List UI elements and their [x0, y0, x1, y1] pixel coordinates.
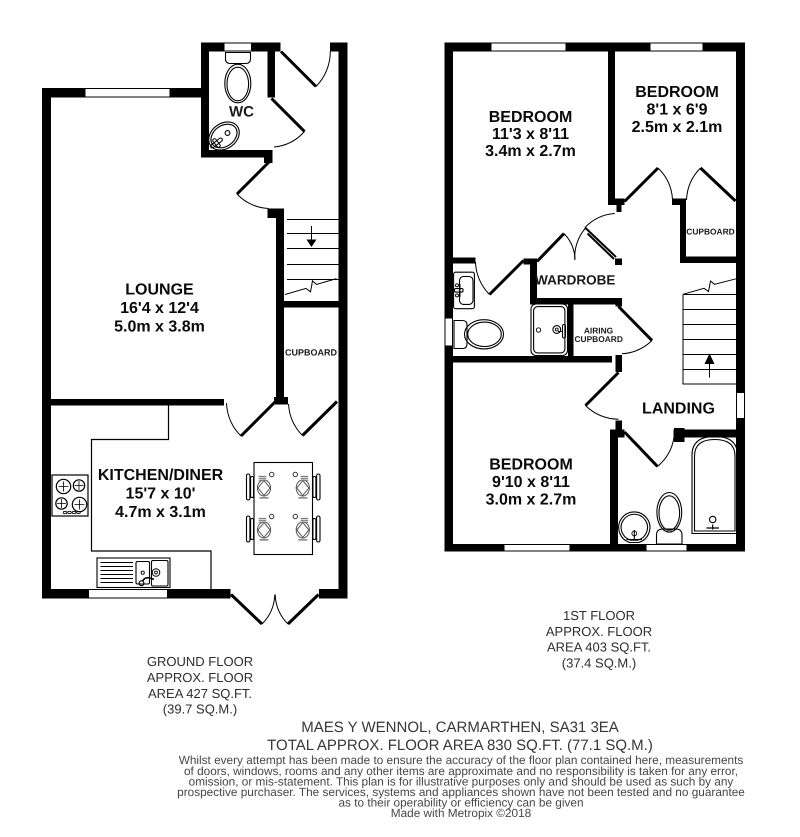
- svg-text:11'3 x 8'11: 11'3 x 8'11: [492, 126, 569, 143]
- svg-text:2.5m x 2.1m: 2.5m x 2.1m: [632, 119, 723, 136]
- svg-text:9'10 x 8'11: 9'10 x 8'11: [492, 474, 570, 491]
- svg-text:LANDING: LANDING: [642, 400, 715, 417]
- svg-text:15'7 x 10': 15'7 x 10': [126, 485, 196, 502]
- svg-text:16'4 x 12'4: 16'4 x 12'4: [120, 300, 199, 317]
- svg-text:5.0m x 3.8m: 5.0m x 3.8m: [114, 318, 205, 335]
- svg-text:(39.7 SQ.M.): (39.7 SQ.M.): [163, 702, 237, 717]
- svg-text:BEDROOM: BEDROOM: [489, 109, 573, 126]
- svg-text:KITCHEN/DINER: KITCHEN/DINER: [98, 467, 224, 484]
- svg-text:CUPBOARD: CUPBOARD: [285, 348, 338, 358]
- svg-text:APPROX. FLOOR: APPROX. FLOOR: [147, 670, 253, 685]
- svg-text:APPROX. FLOOR: APPROX. FLOOR: [546, 624, 652, 639]
- svg-text:BEDROOM: BEDROOM: [489, 456, 573, 473]
- svg-text:MAES Y WENNOL, CARMARTHEN, SA3: MAES Y WENNOL, CARMARTHEN, SA31 3EA: [301, 719, 619, 736]
- svg-text:WARDROBE: WARDROBE: [535, 272, 615, 287]
- svg-text:AREA 427 SQ.FT.: AREA 427 SQ.FT.: [148, 686, 252, 701]
- svg-text:Made with Metropix ©2018: Made with Metropix ©2018: [391, 806, 532, 820]
- svg-text:GROUND FLOOR: GROUND FLOOR: [147, 654, 253, 669]
- svg-text:8'1 x 6'9: 8'1 x 6'9: [647, 101, 708, 118]
- svg-text:WC: WC: [229, 103, 254, 120]
- svg-text:4.7m x 3.1m: 4.7m x 3.1m: [115, 504, 206, 521]
- svg-text:LOUNGE: LOUNGE: [125, 281, 194, 298]
- svg-text:AREA 403 SQ.FT.: AREA 403 SQ.FT.: [547, 640, 651, 655]
- svg-text:3.0m x 2.7m: 3.0m x 2.7m: [486, 491, 577, 508]
- svg-text:BEDROOM: BEDROOM: [635, 84, 719, 101]
- svg-text:(37.4 SQ.M.): (37.4 SQ.M.): [562, 655, 636, 670]
- svg-text:CUPBOARD: CUPBOARD: [575, 334, 623, 344]
- svg-text:1ST FLOOR: 1ST FLOOR: [563, 608, 635, 623]
- svg-text:3.4m x 2.7m: 3.4m x 2.7m: [485, 143, 576, 160]
- svg-text:CUPBOARD: CUPBOARD: [686, 227, 734, 237]
- svg-text:TOTAL APPROX. FLOOR AREA 830 S: TOTAL APPROX. FLOOR AREA 830 SQ.FT. (77.…: [267, 737, 653, 754]
